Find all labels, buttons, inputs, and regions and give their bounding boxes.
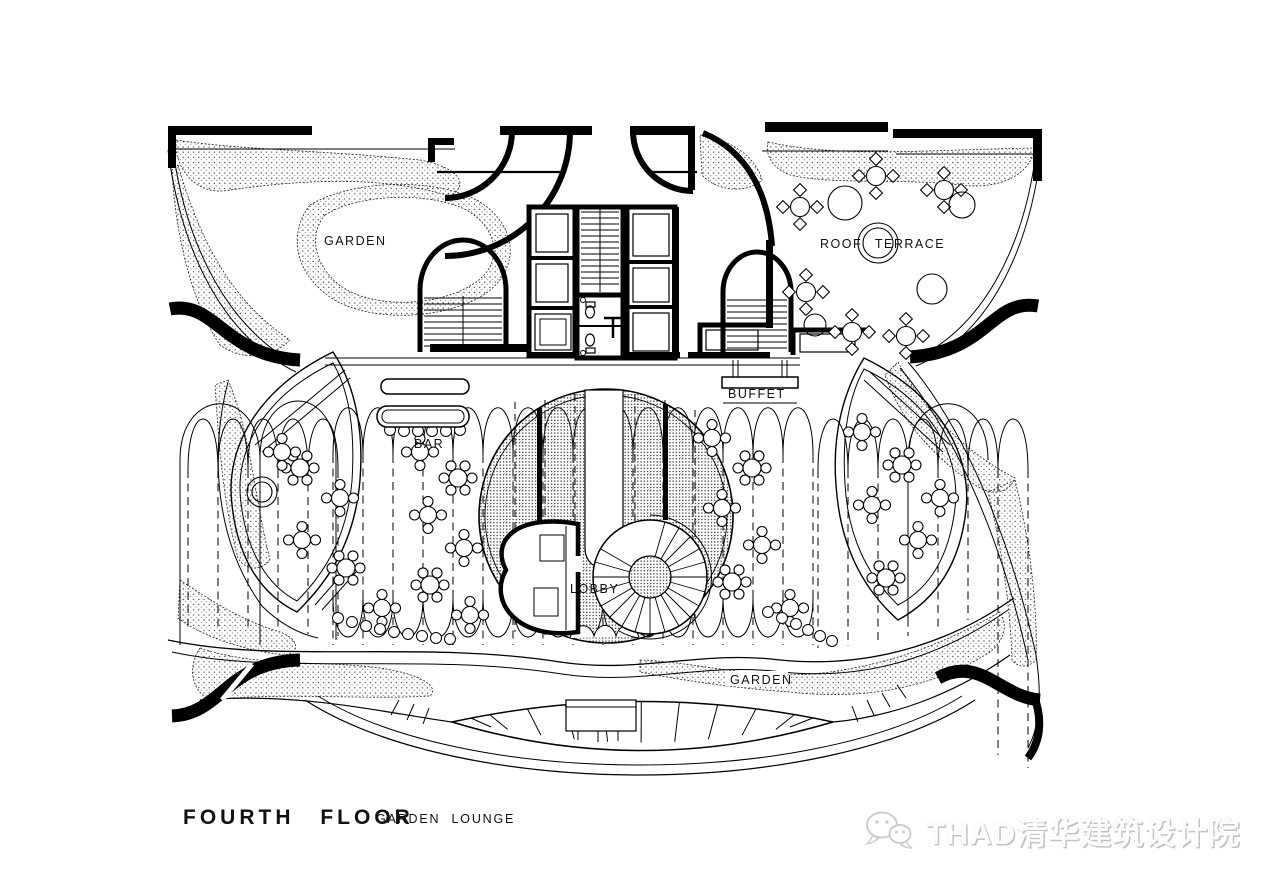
watermark: THAD清华建筑设计院 — [862, 808, 1240, 853]
garden-lawn — [316, 197, 494, 302]
floor-plan-drawing: GARDEN ROOF TERRACE BUFFET BAR LOBBY GAR… — [0, 0, 1280, 890]
wechat-icon — [862, 809, 918, 853]
lobby-pod — [501, 521, 582, 633]
label-garden-bottom: GARDEN — [730, 673, 792, 687]
label-roof-terrace: ROOF TERRACE — [820, 237, 945, 251]
elevator-core — [529, 207, 773, 358]
label-lobby: LOBBY — [570, 582, 619, 596]
title-block: FOURTH FLOOR GARDEN LOUNGE — [183, 806, 515, 829]
restrooms — [577, 295, 623, 358]
fan-deck — [452, 700, 833, 751]
label-garden-top: GARDEN — [324, 234, 386, 248]
drawing-sheet: GARDEN ROOF TERRACE BUFFET BAR LOBBY GAR… — [0, 0, 1280, 890]
bar-counter — [377, 379, 469, 437]
label-bar: BAR — [414, 437, 444, 451]
page-subtitle: GARDEN LOUNGE — [376, 812, 515, 826]
core-stair — [577, 207, 623, 295]
watermark-text: THAD清华建筑设计院 — [926, 808, 1240, 853]
label-buffet: BUFFET — [728, 387, 786, 401]
